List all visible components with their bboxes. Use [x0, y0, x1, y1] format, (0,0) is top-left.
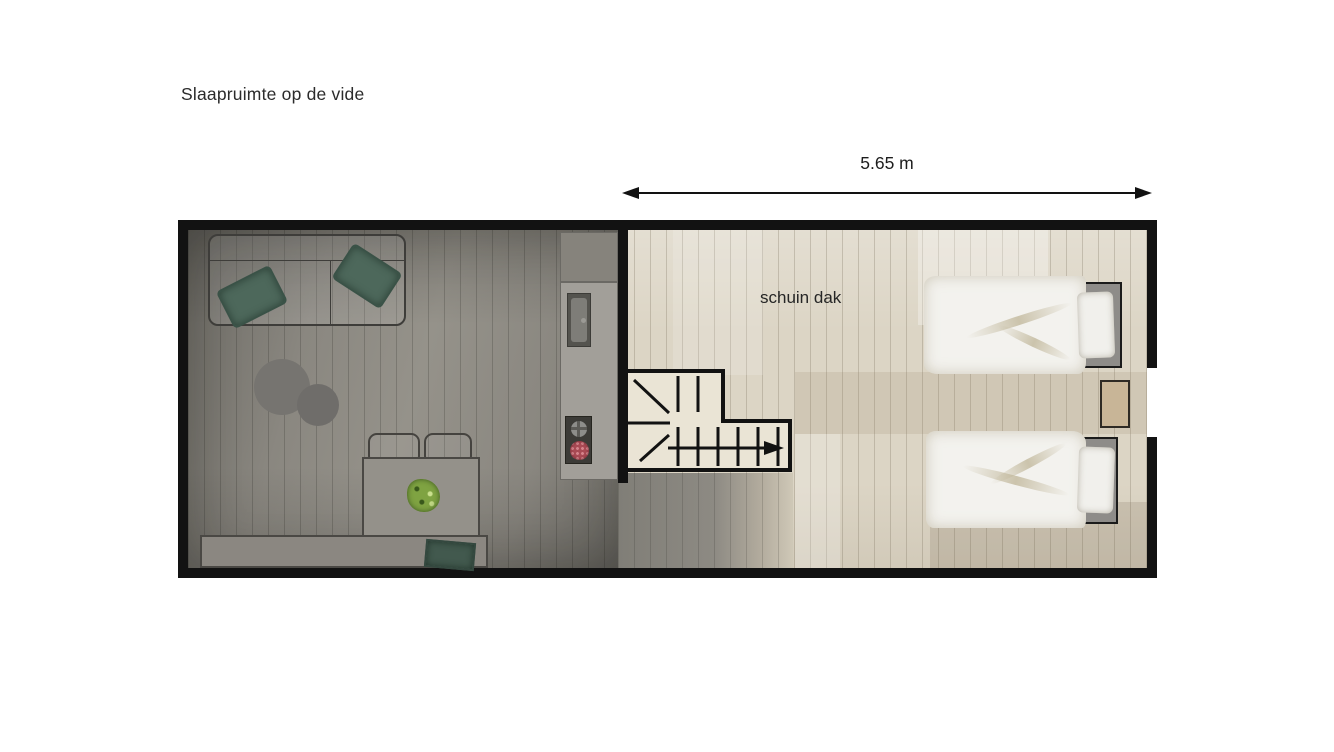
floor-plan: schuin dak [178, 220, 1157, 578]
bed-1-duvet [924, 276, 1086, 374]
dimension-label: 5.65 m [622, 153, 1152, 174]
kitchen-upper-cabinet [560, 232, 618, 282]
floor-highlight [673, 230, 763, 375]
table-plant [407, 479, 440, 512]
arrowhead-left-icon [622, 187, 639, 199]
duvet-wrinkle [996, 322, 1072, 364]
sofa-cushion-divider [330, 260, 331, 324]
sloped-roof-label: schuin dak [760, 288, 841, 308]
floor-below-stairs [618, 473, 793, 568]
dividing-wall [618, 230, 628, 483]
kitchen-sink [567, 293, 591, 347]
bed-2-pillow [1077, 446, 1115, 513]
bed-1-pillow [1077, 291, 1115, 358]
coffee-table-small [297, 384, 339, 426]
bed-2-duvet [926, 431, 1086, 528]
dimension-arrow [622, 186, 1152, 200]
void-living-zone [188, 230, 618, 568]
sink-drain [581, 318, 586, 323]
page-title: Slaapruimte op de vide [181, 84, 364, 105]
arrowhead-right-icon [1135, 187, 1152, 199]
floor-highlight [795, 434, 840, 568]
kitchen-stove [565, 416, 592, 464]
stove-burner [570, 441, 589, 460]
stove-knob [571, 421, 587, 437]
dimension-arrow-shaft [639, 192, 1135, 194]
window-opening [1147, 368, 1157, 437]
nightstand [1100, 380, 1130, 428]
staircase [618, 361, 793, 475]
floor-shade [795, 372, 1147, 434]
kitchen-counter [560, 282, 618, 480]
bench-cushion [424, 539, 476, 571]
